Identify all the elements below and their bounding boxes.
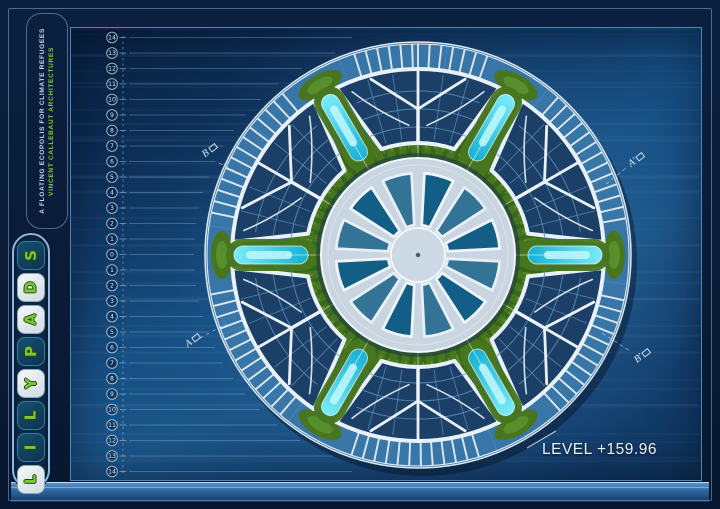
- logo-tile-y: Y: [17, 369, 45, 398]
- drawing-area: [70, 27, 702, 481]
- blueprint-page: A FLOATING ECOPOLIS FOR CLIMATE REFUGEES…: [0, 0, 720, 509]
- bottom-frame-band: [11, 482, 709, 503]
- logo-tile-l: L: [17, 465, 45, 494]
- logo-letter: Y: [24, 378, 39, 389]
- logo-letter: D: [23, 281, 38, 293]
- project-title-block: A FLOATING ECOPOLIS FOR CLIMATE REFUGEES…: [26, 13, 68, 229]
- logo-letter: A: [23, 314, 38, 326]
- logo-letter: S: [24, 250, 39, 261]
- logo-letter: I: [24, 445, 39, 451]
- logo-tile-a: A: [17, 305, 45, 334]
- logo-tile-l: L: [17, 401, 45, 430]
- logo-tile-p: P: [17, 337, 45, 366]
- level-label: LEVEL +159.96: [542, 441, 657, 459]
- lilypads-logo: SDAPYLIL: [12, 233, 50, 489]
- logo-letter: P: [24, 346, 39, 357]
- logo-letter: L: [24, 411, 39, 421]
- project-subtitle: A FLOATING ECOPOLIS FOR CLIMATE REFUGEES: [39, 28, 46, 214]
- logo-tile-s: S: [17, 241, 45, 270]
- logo-letter: L: [24, 475, 39, 485]
- logo-tile-d: D: [17, 273, 45, 302]
- architect-name: VINCENT CALLEBAUT ARCHITECTURES: [48, 47, 55, 196]
- logo-tile-i: I: [17, 433, 45, 462]
